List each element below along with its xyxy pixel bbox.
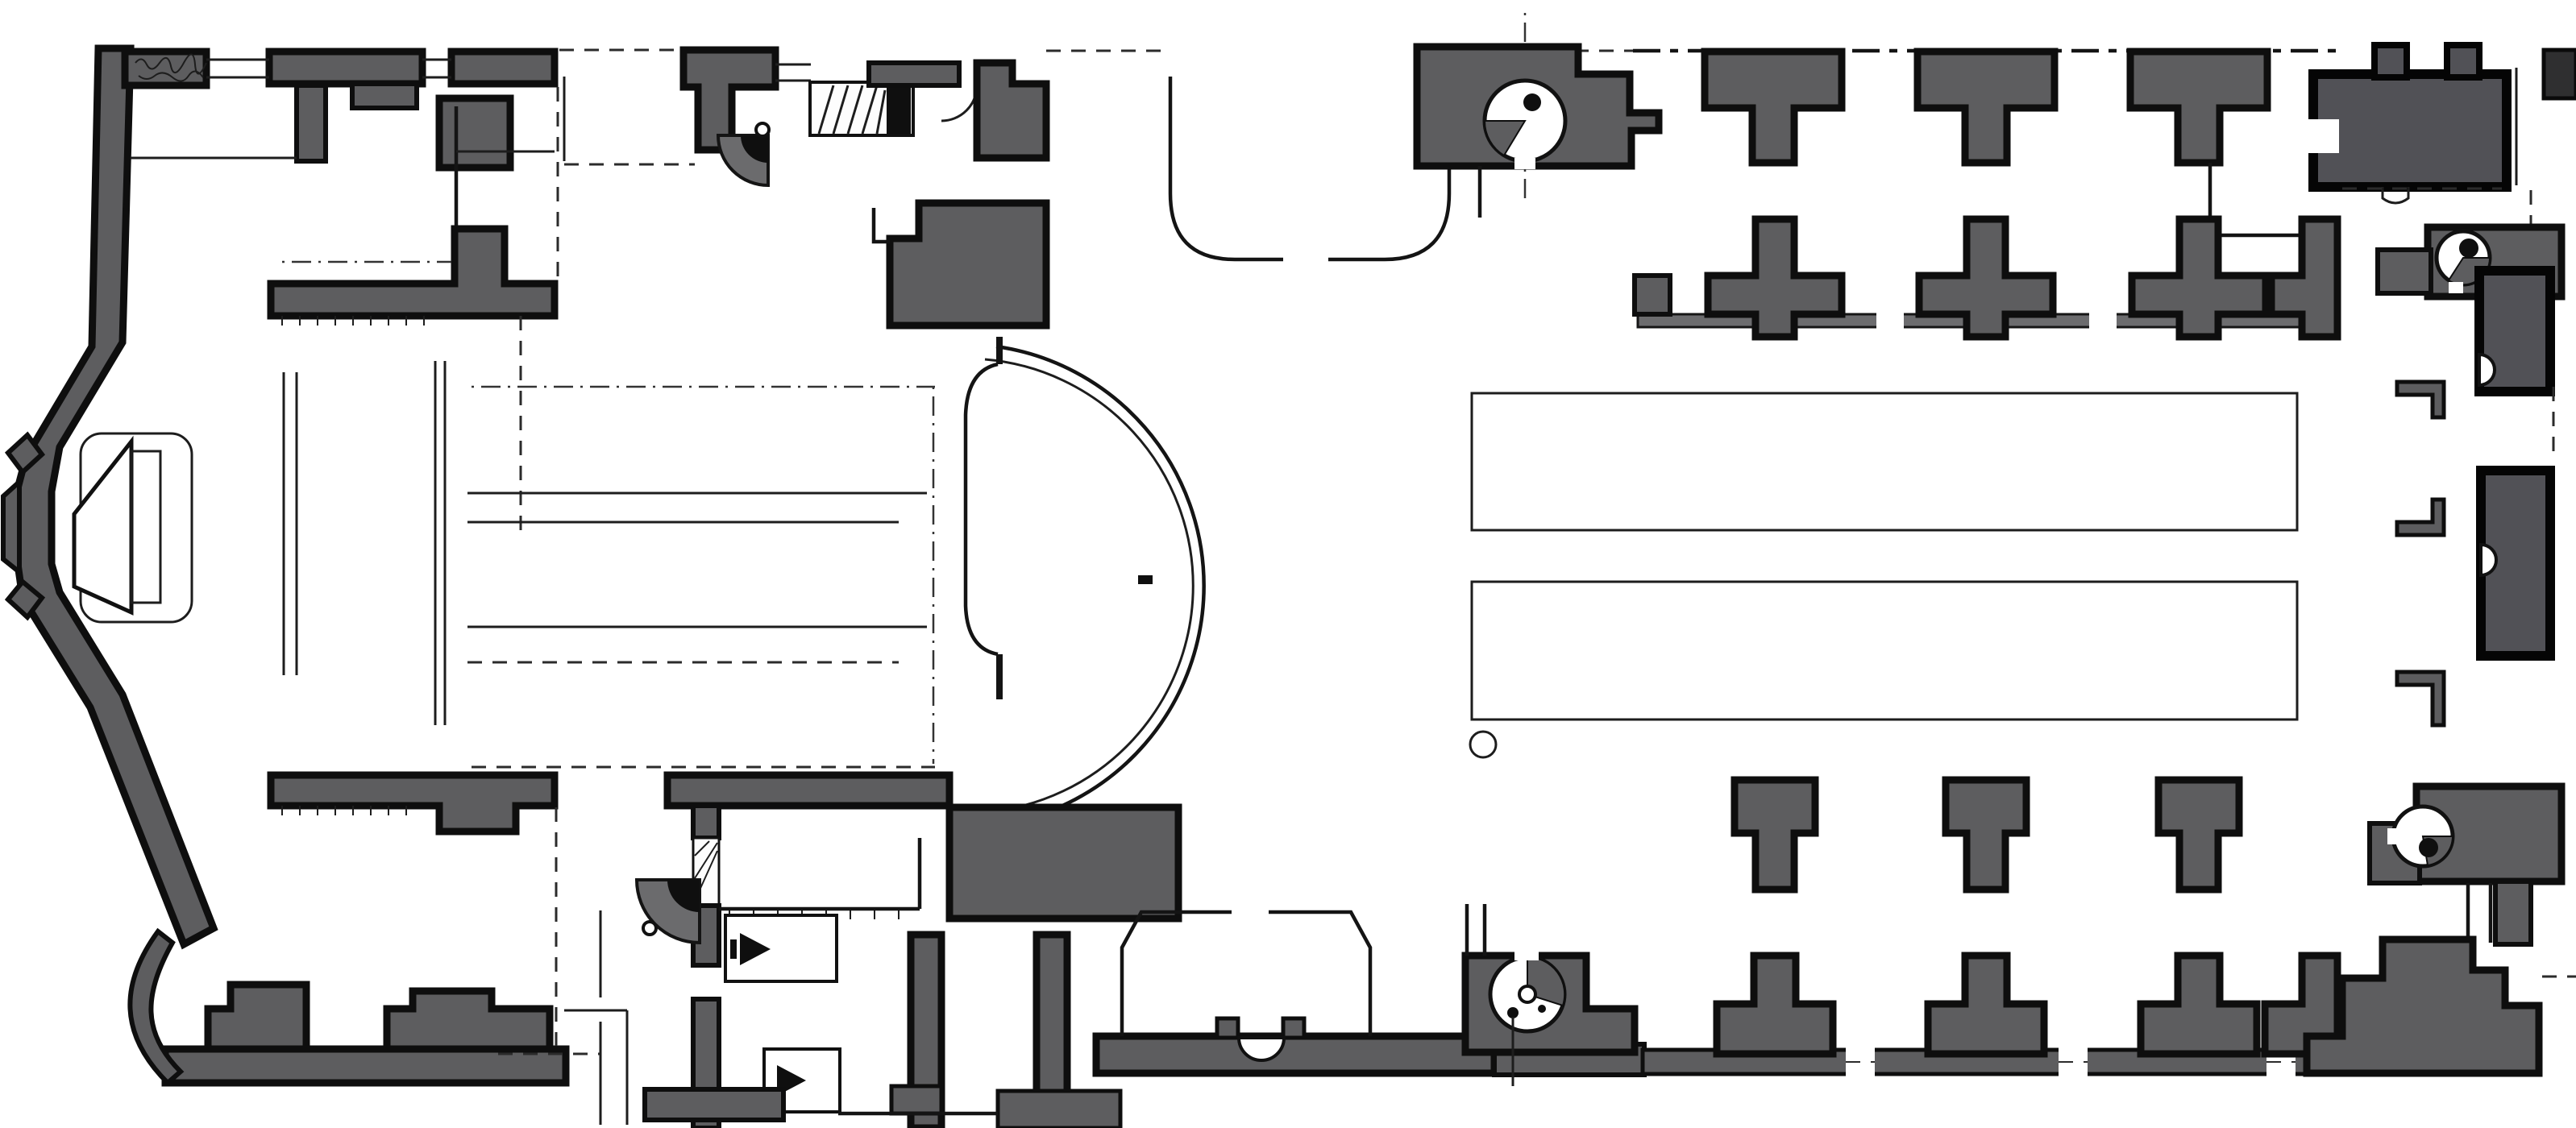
top-room-block <box>439 98 510 168</box>
chancel-south-wall <box>271 775 555 831</box>
ne-corner-room-tab-1 <box>2374 45 2407 77</box>
font-circle <box>1470 732 1496 757</box>
arcade-respond-left <box>1635 276 1670 314</box>
closet-stair-upper-bar <box>730 939 737 959</box>
aisle-pier-1 <box>1735 780 1815 890</box>
east-door-wall-lower <box>2397 500 2444 535</box>
spiral-stair-ne-opening <box>2449 282 2463 293</box>
spiral-stair-se-opening <box>2387 828 2399 844</box>
spiral-stair-sw-newel <box>1519 986 1535 1002</box>
east-door-wall-upper <box>2397 382 2444 417</box>
nave-sill-gap-1 <box>1876 311 1904 330</box>
great-arc-inner <box>985 359 1193 812</box>
north-window-lines <box>775 64 811 81</box>
stair-pier-ne-arm <box>2378 250 2431 293</box>
sanctuary-top-wall-c <box>451 52 555 84</box>
north-transept-block <box>890 203 1046 326</box>
spiral-stair-sw-dot-a <box>1507 1007 1519 1018</box>
aisle-pier-3 <box>2158 780 2239 890</box>
left-bottom-curved-wall <box>130 931 181 1083</box>
great-arc-keystone-tick <box>1138 575 1153 584</box>
pew-platform-1 <box>1472 393 2297 530</box>
bottom-pier-3 <box>2141 956 2257 1054</box>
spiral-stair-nw-newel <box>1523 93 1541 111</box>
passage-ledge <box>891 1086 941 1113</box>
left-bottom-pier-2 <box>387 991 550 1049</box>
door-swing-sw-knob <box>643 922 656 935</box>
south-porch-outline <box>1122 912 1370 1036</box>
sw-wall-piece-upper <box>693 806 719 838</box>
north-porch-outline <box>1170 77 1449 259</box>
east-upper-niche <box>2479 355 2495 385</box>
north-stepped-pier <box>977 63 1046 158</box>
spiral-stair-nw-opening <box>1514 158 1535 169</box>
stair-run-dark-treads <box>887 84 911 134</box>
wall-pier-top-2 <box>1917 52 2055 163</box>
altar-dais-trapezoid <box>74 442 131 612</box>
nave-sill-gap-2 <box>2089 311 2117 330</box>
bottom-pier-2 <box>1928 956 2044 1054</box>
floor-plan-drawing <box>0 0 2576 1128</box>
north-wall-over-stair <box>869 63 959 85</box>
altar-table <box>131 451 160 603</box>
spiral-stair-se-newel <box>2419 838 2438 857</box>
east-l-wall-south <box>2397 672 2444 725</box>
south-entry-tab-2 <box>1283 1018 1304 1038</box>
great-arc-outer <box>996 346 1204 825</box>
top-wall-pier-stub <box>352 84 417 108</box>
spiral-stair-sw-dot-b <box>1538 1005 1546 1013</box>
se-stem-wall <box>2495 881 2531 944</box>
bottom-pier-1 <box>1717 956 1833 1054</box>
wall-pier-top-1 <box>1705 52 1842 163</box>
door-swing-nw-knob <box>756 123 769 136</box>
chancel-north-wall <box>271 229 555 316</box>
window-sill-north-2 <box>422 60 451 77</box>
se-corner-pier <box>2307 939 2539 1073</box>
floor-plan <box>0 0 2576 1128</box>
passage-bottom-connector <box>998 1091 1120 1128</box>
south-entry-wall <box>1096 1036 1494 1073</box>
sw-cross-partition-arm <box>645 1089 783 1120</box>
wall-pier-top-3 <box>2130 52 2267 163</box>
east-lower-niche <box>2481 545 2496 575</box>
south-vestibule-wall <box>667 775 949 806</box>
spiral-stair-ne-newel <box>2459 238 2478 258</box>
south-transept-block <box>949 807 1178 919</box>
window-sill-north-1 <box>206 60 269 77</box>
spiral-stair-sw-opening <box>1514 951 1539 960</box>
ne-corner-fragment <box>2544 50 2576 98</box>
ne-corner-room <box>2313 74 2507 187</box>
left-bottom-pier-1 <box>208 985 306 1049</box>
sanctuary-top-wall-b <box>269 52 422 84</box>
pew-platform-2 <box>1472 582 2297 720</box>
upper-partition-wall <box>297 85 326 161</box>
ne-corner-room-tab-2 <box>2447 45 2479 77</box>
arc-respond-bracket <box>966 364 998 654</box>
aisle-pier-2 <box>1946 780 2026 890</box>
entrance-door-arc <box>941 85 977 121</box>
apse-bay-window <box>3 482 19 572</box>
south-entry-tab-1 <box>1217 1018 1238 1038</box>
ne-corner-room-notch <box>2307 119 2339 153</box>
